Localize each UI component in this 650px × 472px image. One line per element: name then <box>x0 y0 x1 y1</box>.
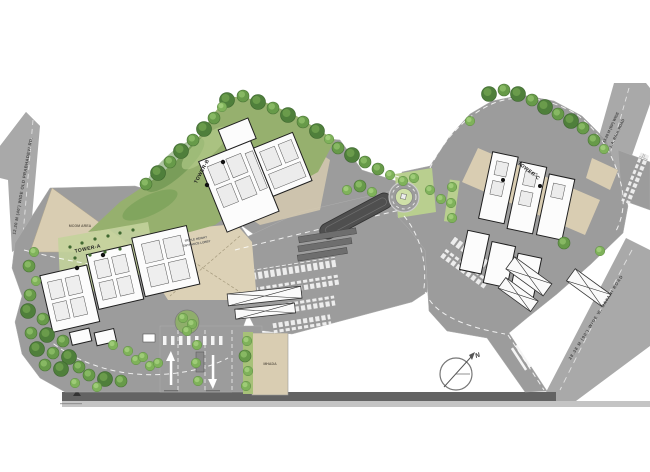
mcgm-area-label: MCGM AREA <box>69 224 92 228</box>
tower-c-core-dot <box>501 178 505 182</box>
roundabout <box>389 182 419 212</box>
mhada-label: MHADA <box>263 362 277 366</box>
kiosk-building <box>143 334 155 342</box>
tower-c-core-dot <box>538 184 542 188</box>
tower-b-core-dot <box>221 160 225 164</box>
tower-b-core-dot <box>205 183 209 187</box>
tower-a-core-dot <box>75 266 79 270</box>
site-plan-svg: N TOWER-A TOWER-B TOWER-C MCGM AREA MHAD… <box>0 0 650 472</box>
site-plan-canvas: N TOWER-A TOWER-B TOWER-C MCGM AREA MHAD… <box>0 0 650 472</box>
